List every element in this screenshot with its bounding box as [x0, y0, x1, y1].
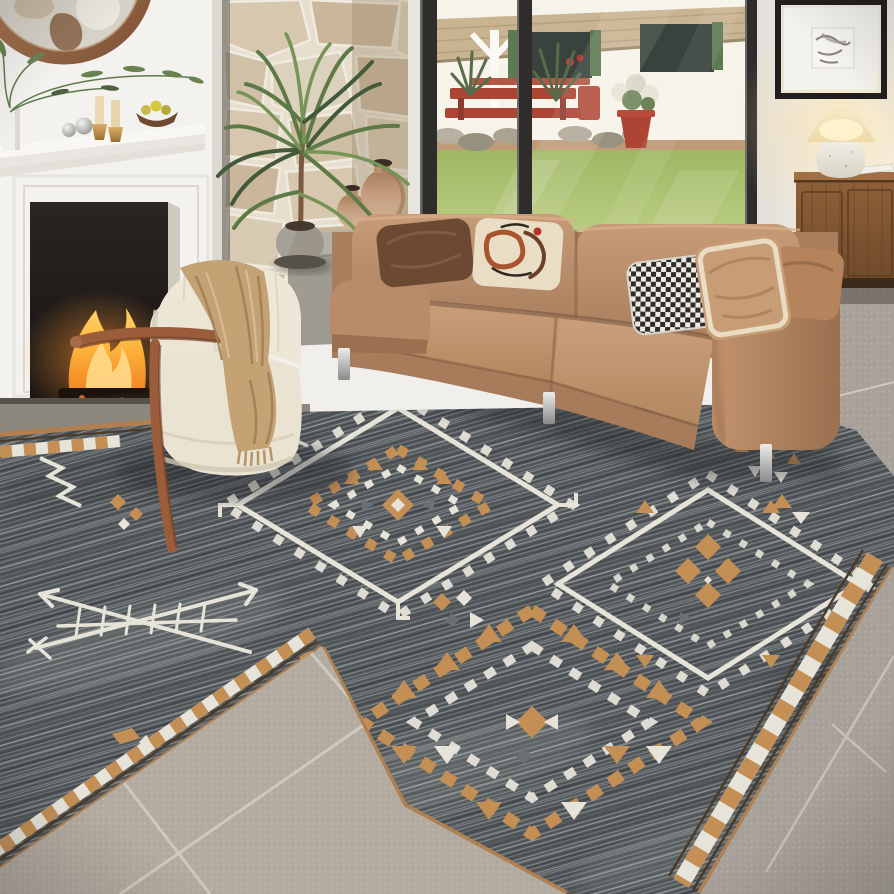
living-room-scene: [0, 0, 894, 894]
vignette: [0, 0, 894, 894]
living-room-photo: [0, 0, 894, 894]
